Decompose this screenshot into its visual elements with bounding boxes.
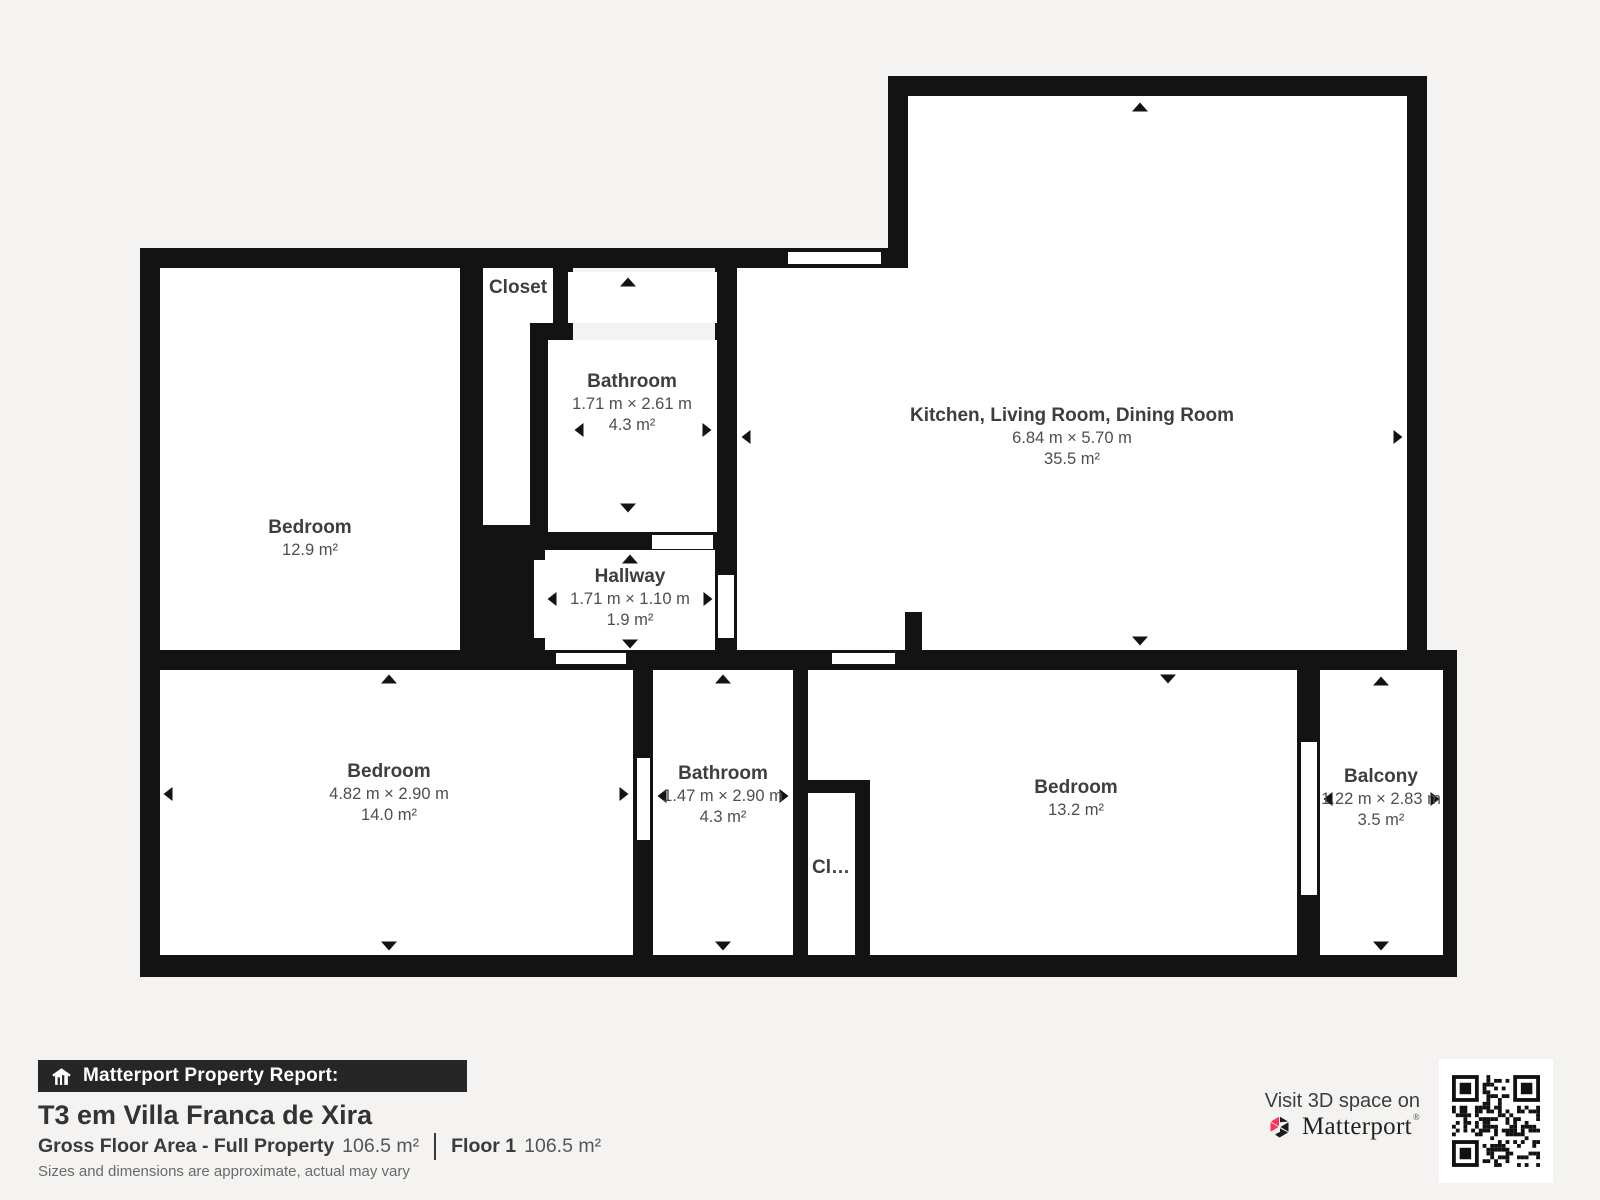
door-opening: [718, 575, 734, 638]
room-name: Bedroom: [329, 760, 449, 784]
room-label-bathroom-top: Bathroom 1.71 m × 2.61 m 4.3 m²: [572, 370, 692, 436]
room-label-balcony: Balcony 1.22 m × 2.83 m 3.5 m²: [1321, 765, 1441, 831]
dimension-arrow-right-icon: [704, 592, 713, 606]
disclaimer-text: Sizes and dimensions are approximate, ac…: [38, 1163, 410, 1180]
dimension-arrow-right-icon: [1394, 430, 1403, 444]
property-title: T3 em Villa Franca de Xira: [38, 1100, 372, 1131]
door-opening: [556, 653, 626, 664]
door-opening: [637, 758, 650, 840]
gross-floor-area-value: 106.5 m²: [342, 1135, 419, 1158]
room-label-bedroom-bottom-right: Bedroom 13.2 m²: [1034, 776, 1117, 821]
room-label-hallway: Hallway 1.71 m × 1.10 m 1.9 m²: [570, 565, 690, 631]
room-area: 13.2 m²: [1034, 800, 1117, 821]
dimension-arrow-down-icon: [1160, 675, 1176, 684]
wall-segment: [888, 76, 1427, 96]
room-name: Bathroom: [663, 762, 783, 786]
room-label-bedroom-top-left: Bedroom 12.9 m²: [268, 516, 351, 561]
dimension-arrow-up-icon: [622, 555, 638, 564]
room-name: Cl…: [812, 856, 850, 880]
room-name: Bedroom: [1034, 776, 1117, 800]
dimension-arrow-up-icon: [1373, 677, 1389, 686]
dimension-arrow-down-icon: [622, 640, 638, 649]
room-name: Bedroom: [268, 516, 351, 540]
dimension-arrow-right-icon: [620, 787, 629, 801]
room-kitchen-living-dining: [908, 96, 1407, 268]
room-area: 14.0 m²: [329, 805, 449, 826]
dimension-arrow-up-icon: [381, 675, 397, 684]
dimension-arrow-down-icon: [715, 942, 731, 951]
wall-segment: [905, 612, 922, 650]
room-area: 4.3 m²: [663, 807, 783, 828]
room-dimensions: 1.47 m × 2.90 m: [663, 786, 783, 807]
wall-segment: [1443, 650, 1457, 977]
wall-segment: [140, 650, 1457, 670]
wall-segment: [140, 248, 160, 977]
wall-segment: [140, 955, 1457, 977]
dimension-arrow-down-icon: [381, 942, 397, 951]
room-name: Bathroom: [572, 370, 692, 394]
dimension-arrow-up-icon: [620, 278, 636, 287]
wall-segment: [460, 525, 548, 545]
dimension-arrow-down-icon: [1373, 942, 1389, 951]
visit-3d-text: Visit 3D space on: [1265, 1090, 1420, 1113]
dimension-arrow-right-icon: [703, 423, 712, 437]
qr-code: [1439, 1059, 1553, 1183]
door-opening: [832, 653, 895, 664]
room-label-kitchen-living-dining: Kitchen, Living Room, Dining Room 6.84 m…: [910, 404, 1234, 470]
room-dimensions: 1.71 m × 2.61 m: [572, 394, 692, 415]
room-label-bedroom-bottom-left: Bedroom 4.82 m × 2.90 m 14.0 m²: [329, 760, 449, 826]
room-area: 4.3 m²: [572, 415, 692, 436]
room-dimensions: 4.82 m × 2.90 m: [329, 784, 449, 805]
floor-plan: Bedroom 12.9 m² Closet Bathroom 1.71 m ×…: [0, 0, 1600, 1000]
dimension-arrow-left-icon: [742, 430, 751, 444]
room-area: 1.9 m²: [570, 610, 690, 631]
registered-mark: ®: [1413, 1112, 1420, 1122]
room-dimensions: 6.84 m × 5.70 m: [910, 428, 1234, 449]
room-name: Kitchen, Living Room, Dining Room: [910, 404, 1234, 428]
room-label-closet-top: Closet: [489, 276, 547, 300]
wall-segment: [530, 323, 573, 340]
gross-floor-area-label: Gross Floor Area - Full Property: [38, 1135, 334, 1158]
room-area: 12.9 m²: [268, 540, 351, 561]
wall-segment: [530, 340, 548, 545]
room-name: Closet: [489, 276, 547, 300]
dimension-arrow-down-icon: [620, 504, 636, 513]
wall-segment: [1407, 96, 1427, 670]
report-bar-label: Matterport Property Report:: [83, 1065, 339, 1087]
room-dimensions: 1.22 m × 2.83 m: [1321, 789, 1441, 810]
matterport-logo: Matterport®: [1266, 1112, 1420, 1141]
room-area: 35.5 m²: [910, 449, 1234, 470]
door-opening: [534, 560, 545, 638]
report-bar: Matterport Property Report:: [38, 1060, 467, 1092]
floor-value: 106.5 m²: [524, 1135, 601, 1158]
room-bathroom-top: [568, 272, 717, 323]
door-opening: [652, 535, 713, 549]
room-dimensions: 1.71 m × 1.10 m: [570, 589, 690, 610]
matterport-wordmark: Matterport®: [1302, 1112, 1420, 1141]
room-bedroom-top-left: [160, 268, 460, 650]
room-label-closet-bottom: Cl…: [812, 856, 850, 880]
wall-segment: [855, 780, 870, 955]
wall-segment: [793, 670, 808, 955]
dimension-arrow-down-icon: [1132, 637, 1148, 646]
floor-label: Floor 1: [451, 1135, 516, 1158]
room-label-bathroom-bottom: Bathroom 1.47 m × 2.90 m 4.3 m²: [663, 762, 783, 828]
dimension-arrow-up-icon: [1132, 103, 1148, 112]
dimension-arrow-left-icon: [548, 592, 557, 606]
room-area: 3.5 m²: [1321, 810, 1441, 831]
wall-segment: [888, 76, 908, 268]
divider: [434, 1133, 436, 1160]
house-icon: [51, 1066, 72, 1087]
dimension-arrow-left-icon: [164, 787, 173, 801]
window-opening: [1301, 742, 1317, 895]
room-name: Hallway: [570, 565, 690, 589]
dimension-arrow-up-icon: [715, 675, 731, 684]
room-name: Balcony: [1321, 765, 1441, 789]
window-opening: [788, 252, 881, 264]
matterport-mark-icon: [1266, 1113, 1293, 1140]
floor-area-stats: Gross Floor Area - Full Property 106.5 m…: [38, 1133, 601, 1160]
